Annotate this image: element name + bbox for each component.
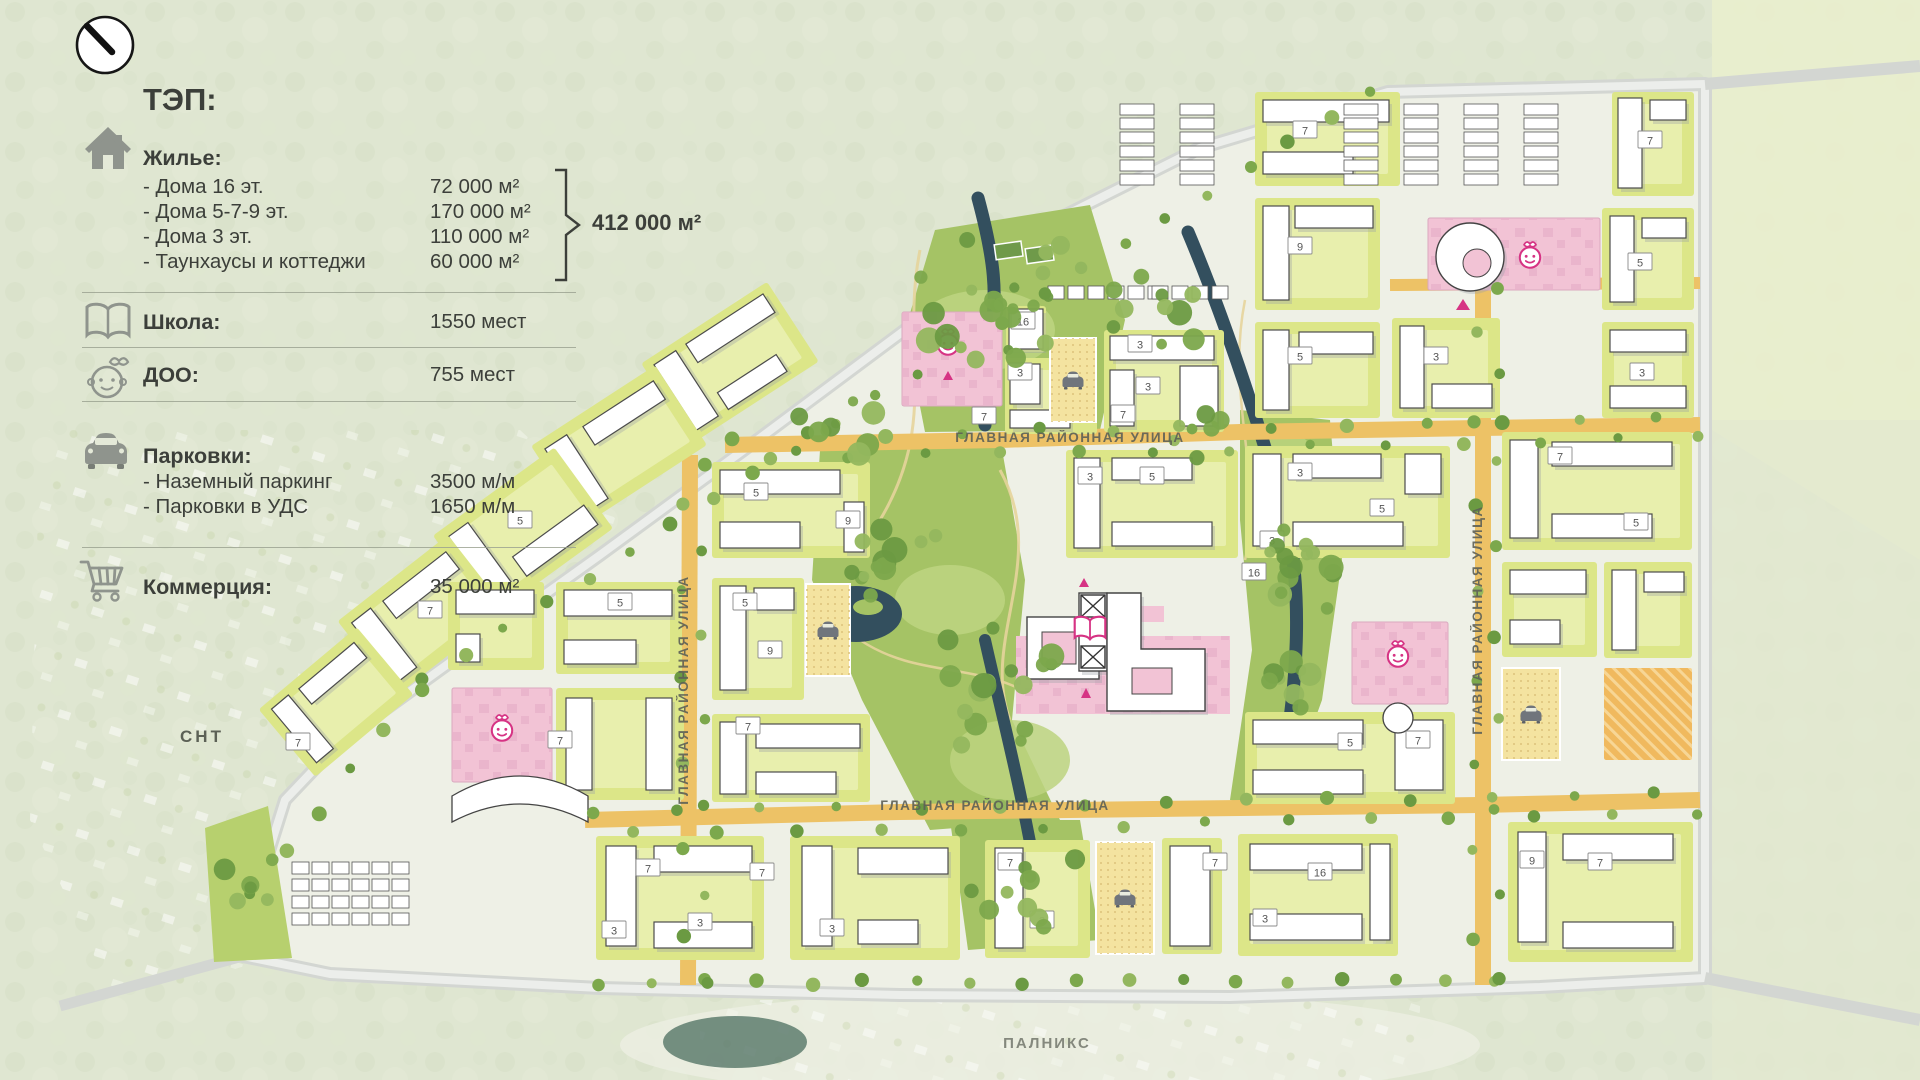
park-tree [1319,555,1344,580]
street-tree [1240,793,1253,806]
park-tree [859,571,870,582]
park-tree [986,622,999,635]
floor-count-badge: 7 [1588,853,1612,870]
street-tree [1202,191,1212,201]
village-pond [663,1016,807,1068]
street-tree [1495,415,1510,430]
svg-text:7: 7 [1415,736,1421,748]
street-tree [1613,433,1622,442]
street-tree [870,390,880,400]
street-tree [1471,326,1482,337]
building [1563,834,1673,860]
svg-text:9: 9 [845,516,851,528]
street-tree [415,683,429,697]
street-tree [1224,446,1234,456]
svg-text:5: 5 [1149,472,1155,484]
park-tree [790,408,808,426]
svg-text:3: 3 [1137,340,1143,352]
park-tree [1007,303,1018,314]
street-tree [955,824,967,836]
tennis-court [994,241,1023,260]
building [1612,570,1636,650]
street-tree [1492,972,1505,985]
street-tree [875,824,887,836]
residential-block [712,578,804,700]
svg-text:7: 7 [557,736,563,748]
park-tree [1184,286,1201,303]
street-tree [1492,456,1502,466]
parking-block [1050,338,1096,422]
floor-count-badge: 5 [733,593,757,610]
street-tree [1178,974,1189,985]
building [1510,440,1538,538]
park-tree [1183,328,1205,350]
park-tree [1299,538,1313,552]
street-tree [663,517,678,532]
park-tree [1065,849,1085,869]
residential-block [556,688,684,800]
park-tree [1037,335,1054,352]
building [564,640,636,664]
building [1263,206,1289,300]
park-tree [266,854,279,867]
street-tree [1365,86,1375,96]
svg-text:3: 3 [1145,382,1151,394]
street-tree [1494,368,1505,379]
svg-text:5: 5 [1297,352,1303,364]
street-tree [280,843,295,858]
street-tree [625,547,635,557]
pink-block [452,688,552,782]
floor-count-badge: 7 [1638,131,1662,148]
park-tree [1321,602,1334,615]
park-tree [870,518,892,540]
floor-count-badge: 7 [1548,447,1572,464]
park-tree [882,537,908,563]
svg-text:9: 9 [767,646,773,658]
street-tree [1487,630,1501,644]
street-tree [1422,418,1433,429]
svg-text:7: 7 [1597,858,1603,870]
park-tree [214,859,236,881]
park-tree [847,442,871,466]
street-tree [1121,238,1132,249]
park-tree [1133,269,1149,285]
street-tree [1535,438,1546,449]
floor-count-badge: 3 [1630,363,1654,380]
street-tree [1200,816,1210,826]
park-tree [1275,587,1287,599]
svg-text:7: 7 [1007,858,1013,870]
street-tree [592,979,605,992]
svg-text:5: 5 [517,516,523,528]
street-tree [1692,809,1702,819]
round-building [1383,703,1413,733]
svg-text:7: 7 [1647,136,1653,148]
residential-block [790,836,960,960]
street-tree [698,800,709,811]
street-tree [1365,812,1377,824]
street-tree [698,458,712,472]
svg-text:3: 3 [1087,472,1093,484]
building [1610,386,1686,408]
street-tree [1148,447,1158,457]
street-tree [584,573,596,585]
building [858,920,918,944]
svg-text:9: 9 [1297,242,1303,254]
svg-text:7: 7 [295,738,301,750]
svg-text:9: 9 [1529,856,1535,868]
floor-count-badge: 5 [1288,347,1312,364]
floor-count-badge: 16 [1242,563,1266,580]
street-tree [1457,437,1471,451]
residential-block [1502,562,1597,657]
floor-count-badge: 7 [736,717,760,734]
park-tree [1298,663,1321,686]
park-tree [261,893,274,906]
park-tree [1014,676,1033,695]
street-tree [1404,794,1417,807]
street-tree [1335,972,1349,986]
park-tree [1001,886,1014,899]
floor-count-badge: 7 [636,859,660,876]
street-tree [1283,814,1294,825]
park-tree [922,302,945,325]
svg-text:3: 3 [1297,468,1303,480]
park-tree [1261,673,1278,690]
street-tree [1648,786,1660,798]
street-tree [1282,977,1294,989]
residential-block [712,462,870,558]
street-tree [912,975,922,985]
svg-text:7: 7 [1212,858,1218,870]
street-tree [1229,975,1242,988]
parking-block [806,584,850,676]
svg-text:7: 7 [427,606,433,618]
svg-text:3: 3 [1639,368,1645,380]
residential-block [1508,822,1693,962]
street-tree [1324,110,1339,125]
street-tree [700,714,711,725]
building [1263,152,1353,174]
svg-text:7: 7 [1557,452,1563,464]
floor-count-badge: 5 [1140,467,1164,484]
building [1250,844,1362,870]
park-tree [1196,405,1215,424]
street-tree [459,648,473,662]
svg-text:3: 3 [1262,914,1268,926]
park-tree [966,285,977,296]
building [1253,770,1363,794]
building [1650,100,1686,120]
park-tree [1039,643,1065,669]
parking-block [1096,842,1154,954]
floor-count-badge: 5 [608,593,632,610]
street-tree [671,804,683,816]
svg-text:5: 5 [742,598,748,610]
street-tree [676,842,689,855]
svg-text:7: 7 [759,868,765,880]
street-tree [1015,978,1028,991]
street-tree [913,370,923,380]
street-tree [1187,424,1198,435]
park-tree [979,900,999,920]
floor-count-badge: 16 [1308,863,1332,880]
street-tree [1280,134,1295,149]
street-tree [700,891,709,900]
street-tree [790,824,804,838]
building [1295,206,1373,228]
street-tree [312,806,327,821]
street-tree [1442,811,1455,824]
park-tree [967,351,985,369]
park-tree [1016,721,1033,738]
park-tree [929,529,942,542]
street-tree [1466,933,1480,947]
street-tree [1487,792,1498,803]
floor-count-badge: 5 [508,511,532,528]
svg-text:3: 3 [697,918,703,930]
building [756,724,860,748]
building [720,522,800,548]
street-tree [498,624,507,633]
street-tree [677,929,691,943]
street-tree [695,630,706,641]
building [654,846,752,872]
svg-text:16: 16 [1248,568,1260,580]
svg-text:7: 7 [1302,126,1308,138]
floor-count-badge: 9 [1520,851,1544,868]
park-tree [957,704,973,720]
park-tree [1157,299,1173,315]
residential-block [1604,562,1692,658]
building [456,590,534,614]
park-tree [1036,266,1051,281]
street-tree [1467,845,1477,855]
floor-count-badge: 9 [1288,237,1312,254]
park-tree [915,535,928,548]
building [1370,844,1390,940]
park-tree [244,881,256,893]
street-tree [1072,445,1085,458]
svg-text:7: 7 [745,722,751,734]
building [1405,454,1441,494]
residential-block [1255,198,1380,310]
street-tree [1390,974,1402,986]
floor-count-badge: 9 [758,641,782,658]
masterplan-map: 1633377595975737373716395375373531675759… [0,0,1920,1080]
street-tree [1160,796,1173,809]
street-tree [1651,412,1662,423]
floor-count-badge: 9 [836,511,860,528]
street-tree [1491,282,1504,295]
street-tree [1607,809,1618,820]
svg-text:7: 7 [981,412,987,424]
park-tree [1279,555,1302,578]
street-tree [725,432,740,447]
park-tree [1105,281,1122,298]
park-tree [1051,236,1070,255]
street-tree [1495,889,1505,899]
street-tree [1693,431,1704,442]
street-tree [1340,419,1354,433]
building [1563,922,1673,948]
park-tree [808,422,829,443]
street-tree [1159,213,1170,224]
building [1510,620,1560,644]
floor-count-badge: 3 [1078,467,1102,484]
park-tree [844,565,859,580]
building [1112,522,1212,546]
street-tree [1489,804,1500,815]
park-tree [1020,870,1040,890]
park-tree [914,271,927,284]
floor-count-badge: 3 [1424,347,1448,364]
building [1400,326,1424,408]
street-name-label: ГЛАВНАЯ РАЙОННАЯ УЛИЦА [1470,505,1485,734]
building [1642,218,1686,238]
park-tree [1156,339,1167,350]
street-tree [1490,540,1502,552]
street-tree [540,595,553,608]
area-name-label: СНТ [180,727,224,746]
floor-count-badge: 3 [602,921,626,938]
residential-block [1066,450,1238,558]
street-tree [1320,791,1334,805]
park-tree [1264,546,1275,557]
floor-count-badge: 3 [1288,463,1312,480]
street-tree [587,807,599,819]
floor-count-badge: 3 [820,919,844,936]
street-tree [345,763,355,773]
masterplan-poster: 1633377595975737373716395375373531675759… [0,0,1920,1080]
street-tree [832,802,842,812]
park-tree [1005,664,1018,677]
street-tree [1570,791,1580,801]
street-tree [745,466,760,481]
park-tree [971,673,996,698]
svg-text:3: 3 [829,924,835,936]
street-tree [1118,821,1130,833]
svg-text:5: 5 [753,488,759,500]
building [1518,832,1546,942]
street-tree [764,452,777,465]
floor-count-badge: 5 [1338,733,1362,750]
svg-text:3: 3 [611,926,617,938]
residential-block [1255,322,1380,418]
street-tree [707,492,720,505]
park-tree [1292,699,1308,715]
park-tree [863,588,877,602]
street-tree [791,446,801,456]
street-tree [710,826,724,840]
street-tree [749,973,763,987]
floor-count-badge: 5 [744,483,768,500]
building [720,470,840,494]
floor-count-badge: 7 [1203,853,1227,870]
street-name-label: ГЛАВНАЯ РАЙОННАЯ УЛИЦА [880,798,1109,813]
svg-text:5: 5 [1379,504,1385,516]
street-tree [994,446,1006,458]
floor-count-badge: 3 [1128,335,1152,352]
floor-count-badge: 7 [750,863,774,880]
building [646,698,672,790]
street-tree [1075,262,1087,274]
floor-count-badge: 7 [548,731,572,748]
building [1644,572,1684,592]
svg-text:5: 5 [617,598,623,610]
svg-text:7: 7 [1120,410,1126,422]
park-tree [229,893,246,910]
floor-count-badge: 7 [1293,121,1317,138]
street-name-label: ГЛАВНАЯ РАЙОННАЯ УЛИЦА [676,575,691,804]
street-tree [696,546,707,557]
park-tree [953,736,970,753]
park-tree [1189,450,1204,465]
park-tree [871,561,882,572]
park-tree [1027,300,1039,312]
street-tree [878,429,893,444]
residential-block [1502,432,1692,550]
residential-block [1238,834,1398,956]
street-tree [1528,810,1540,822]
park-tree [959,232,975,248]
park-tree [1015,735,1026,746]
street-tree [1469,760,1479,770]
park-tree [855,533,871,549]
street-tree [1381,440,1391,450]
street-tree [1467,415,1480,428]
building [1263,330,1289,410]
building [1610,330,1686,352]
street-tree [1305,440,1314,449]
floor-count-badge: 3 [1253,909,1277,926]
street-tree [1123,973,1137,987]
street-tree [1070,974,1083,987]
street-tree [1038,824,1048,834]
building [1432,384,1492,408]
park-tree [1043,292,1053,302]
park-tree [862,401,886,425]
park-tree [1036,919,1052,935]
floor-count-badge: 7 [1111,405,1135,422]
building [754,588,794,610]
parking-block [1502,668,1560,760]
street-tree [921,448,931,458]
floor-count-badge: 7 [1406,731,1430,748]
building [756,772,836,794]
pink-block [1352,622,1448,704]
street-tree [702,977,714,989]
svg-text:5: 5 [1637,258,1643,270]
street-tree [676,498,689,511]
street-tree [806,978,820,992]
park-tree [1006,348,1026,368]
street-tree [376,723,390,737]
park-tree [938,629,959,650]
north-arrow [77,17,133,73]
floor-count-badge: 7 [286,733,310,750]
park-tree [964,884,978,898]
park-tree [935,324,960,349]
svg-text:3: 3 [1433,352,1439,364]
floor-count-badge: 5 [1624,513,1648,530]
floor-count-badge: 3 [688,913,712,930]
park-tree [1277,524,1290,537]
street-tree [647,978,657,988]
floor-count-badge: 3 [1136,377,1160,394]
street-tree [627,826,639,838]
